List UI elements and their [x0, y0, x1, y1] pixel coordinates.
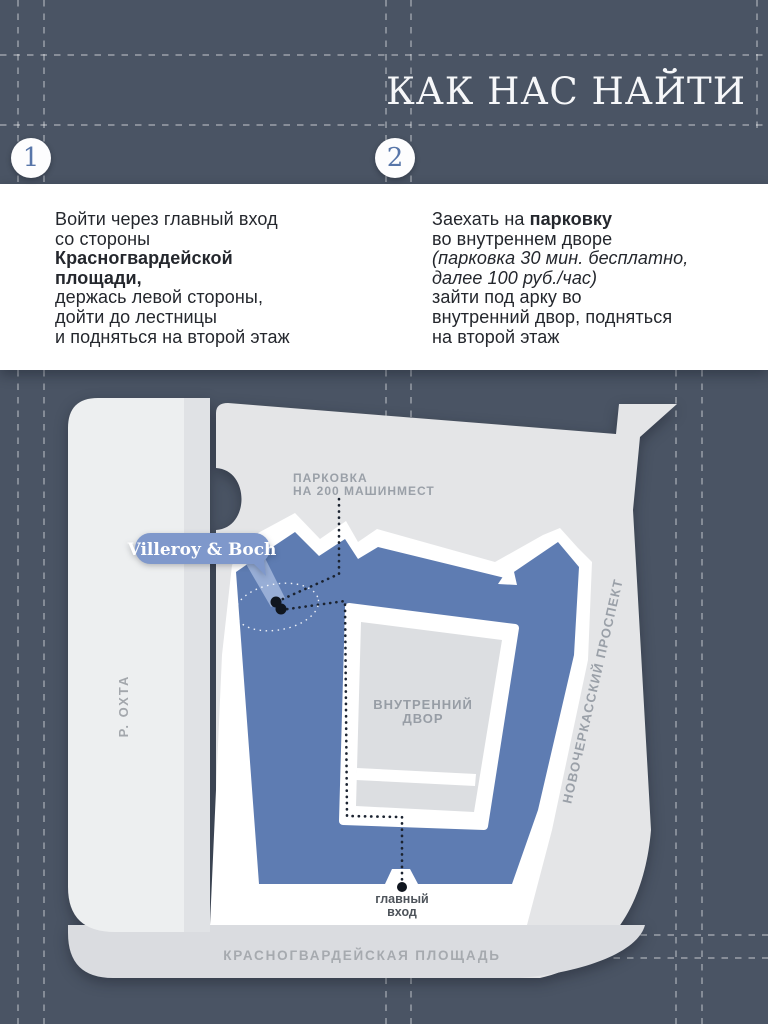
step-2-line: на второй этаж [432, 328, 762, 348]
entrance-label: вход [387, 905, 417, 919]
page-title: КАК НАС НАЙТИ [386, 70, 746, 113]
street-label-krasnogvardeyskaya: КРАСНОГВАРДЕЙСКАЯ ПЛОЩАДЬ [223, 948, 501, 963]
location-map: Villeroy & Boch ПАРКОВКА НА 200 МАШИНМЕС… [0, 370, 768, 1024]
step-1-line: со стороны [55, 230, 405, 250]
courtyard-label: ВНУТРЕННИЙ [373, 697, 473, 712]
poster-page: КАК НАС НАЙТИ Войти через главный вход с… [0, 0, 768, 1024]
step-2-line-bold: парковку [530, 209, 613, 229]
step-2-line: зайти под арку во [432, 288, 762, 308]
step-1-line: дойти до лестницы [55, 308, 405, 328]
step-1-line: держась левой стороны, [55, 288, 405, 308]
step-1-line: и подняться на второй этаж [55, 328, 405, 348]
instructions-panel: Войти через главный вход со стороны Крас… [0, 184, 768, 370]
step-2-line-prefix: Заехать на [432, 209, 530, 229]
parking-label: НА 200 МАШИНМЕСТ [293, 484, 435, 498]
riverbank-edge [184, 398, 210, 932]
courtyard-label: ДВОР [402, 711, 443, 726]
parking-label: ПАРКОВКА [293, 471, 368, 485]
location-dot [276, 604, 287, 615]
step-2-line: внутренний двор, подняться [432, 308, 762, 328]
step-1-text: Войти через главный вход со стороны Крас… [55, 210, 405, 347]
step-1-line: Войти через главный вход [55, 210, 405, 230]
step-1-line: площади, [55, 269, 405, 289]
step-2-badge: 2 [375, 138, 415, 178]
step-2-text: Заехать на парковку во внутреннем дворе … [432, 210, 762, 347]
step-2-line: далее 100 руб./час) [432, 269, 762, 289]
street-label-okhta: Р. ОХТА [116, 675, 131, 738]
entrance-label: главный [375, 892, 428, 906]
entrance-dot [397, 882, 407, 892]
step-2-line: Заехать на парковку [432, 210, 762, 230]
step-2-line: во внутреннем дворе [432, 230, 762, 250]
step-2-line: (парковка 30 мин. бесплатно, [432, 249, 762, 269]
brand-pill-label: Villeroy & Boch [127, 540, 277, 560]
step-1-badge: 1 [11, 138, 51, 178]
step-1-line: Красногвардейской [55, 249, 405, 269]
